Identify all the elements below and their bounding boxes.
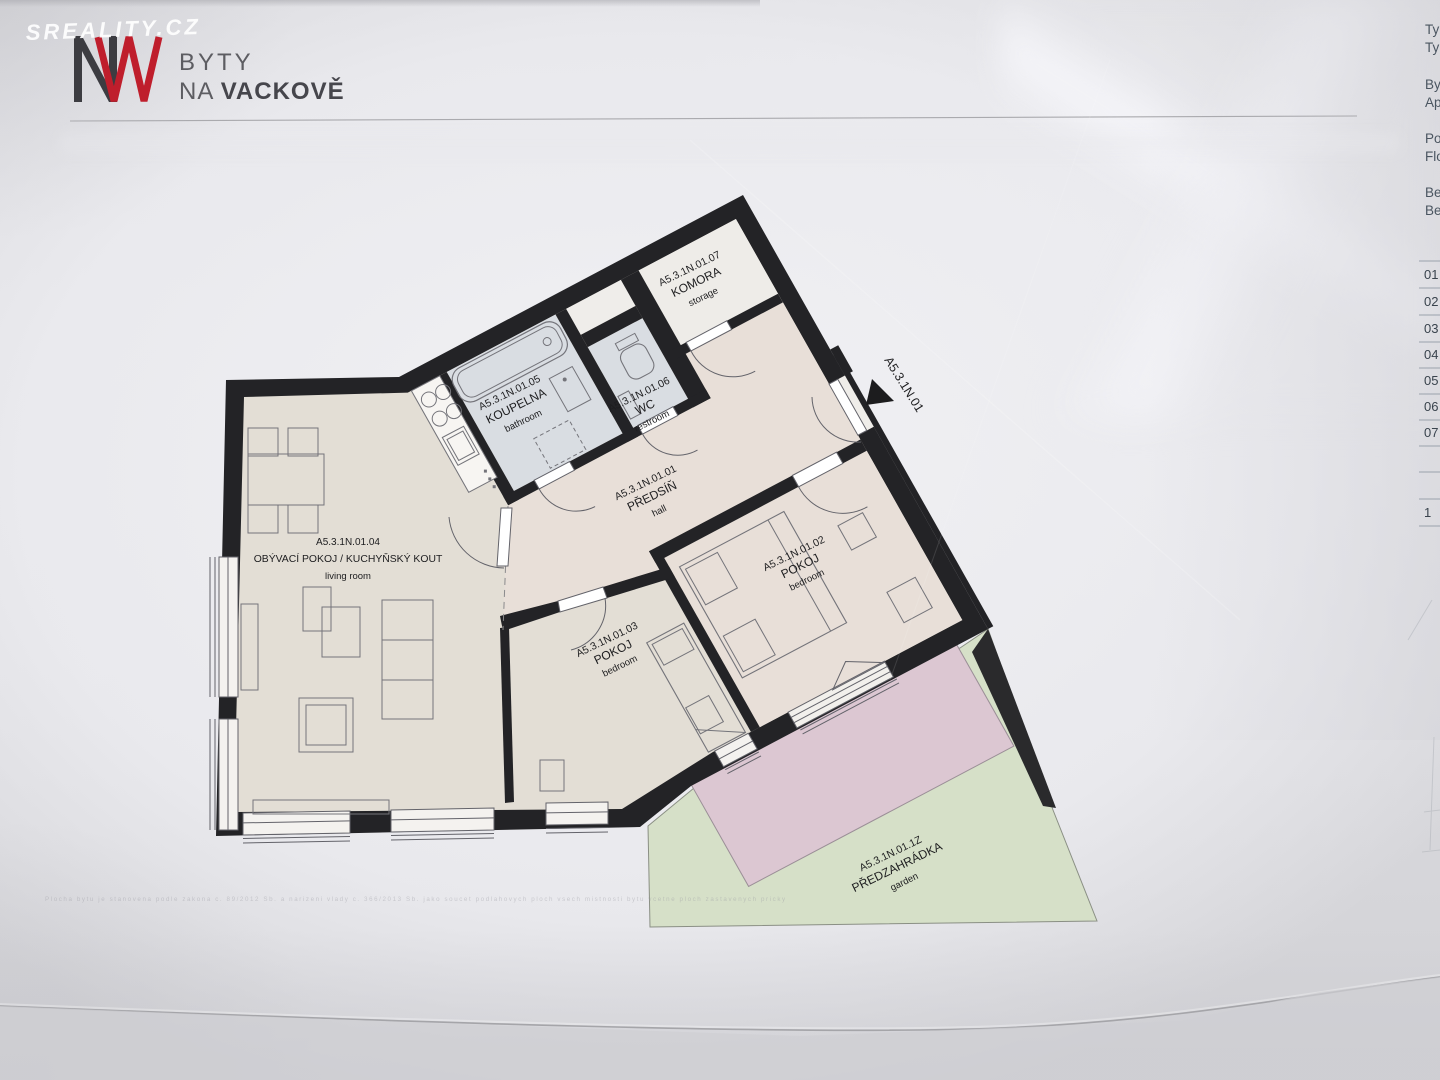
svg-text:Flo: Flo	[1425, 149, 1440, 164]
svg-text:living room: living room	[325, 571, 371, 582]
svg-text:Byt: Byt	[1425, 77, 1440, 92]
svg-text:05: 05	[1424, 373, 1438, 388]
svg-text:A5.3.1N.01.04: A5.3.1N.01.04	[316, 537, 380, 548]
svg-text:Bed: Bed	[1425, 185, 1440, 200]
svg-text:06: 06	[1424, 399, 1438, 414]
svg-text:02: 02	[1424, 294, 1438, 309]
svg-text:04: 04	[1424, 347, 1438, 362]
svg-text:Bed: Bed	[1425, 203, 1440, 218]
svg-text:NA VACKOVĚ: NA VACKOVĚ	[179, 77, 345, 105]
svg-text:Typ: Typ	[1425, 40, 1440, 55]
svg-text:Typ: Typ	[1425, 22, 1440, 37]
svg-text:Apar: Apar	[1425, 95, 1440, 110]
svg-text:BYTY: BYTY	[179, 49, 254, 76]
svg-text:OBÝVACÍ POKOJ / KUCHYŇSKÝ KOUT: OBÝVACÍ POKOJ / KUCHYŇSKÝ KOUT	[254, 552, 443, 565]
svg-text:07: 07	[1424, 425, 1438, 440]
svg-text:1: 1	[1424, 505, 1431, 520]
svg-text:03: 03	[1424, 321, 1438, 336]
svg-text:Pod: Pod	[1425, 131, 1440, 146]
svg-text:A5.3.1N.01: A5.3.1N.01	[881, 354, 926, 414]
svg-text:01: 01	[1424, 267, 1438, 282]
svg-text:Plocha bytu je stanovena podle: Plocha bytu je stanovena podle zakona c.…	[45, 896, 787, 903]
svg-text:SREALITY.CZ: SREALITY.CZ	[25, 14, 201, 45]
